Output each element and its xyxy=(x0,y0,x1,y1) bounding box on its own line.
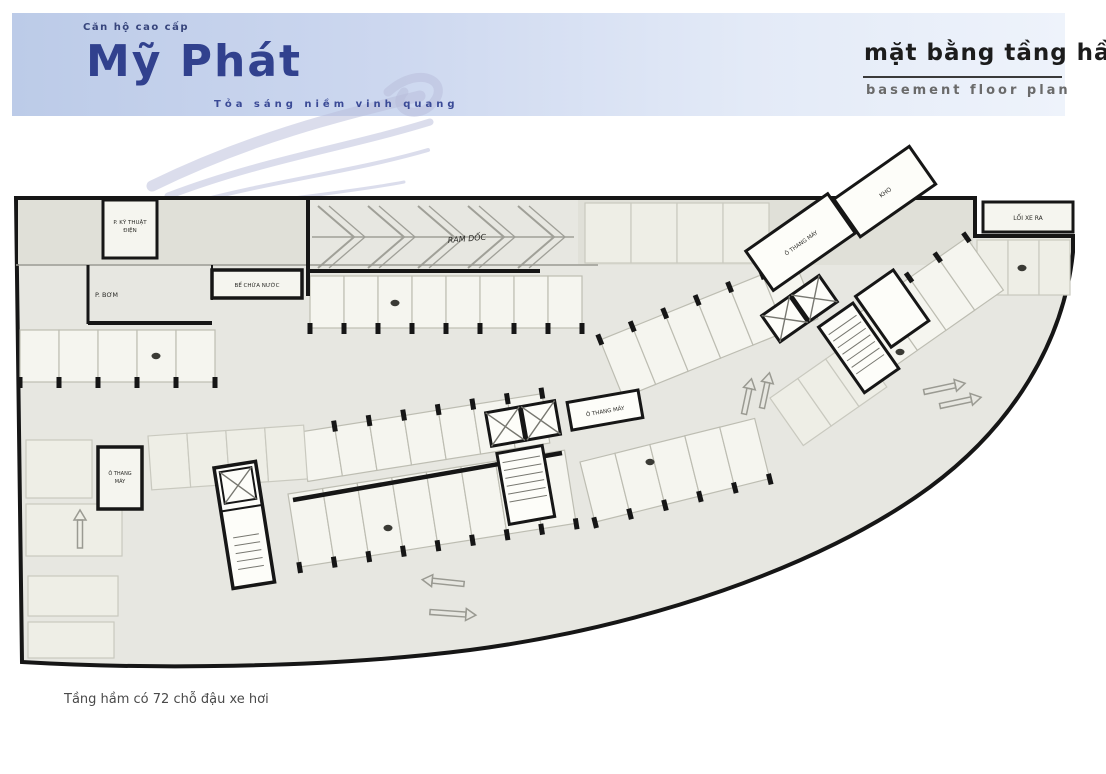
parking-stall xyxy=(28,622,114,658)
caption-parking-count: Tầng hầm có 72 chỗ đậu xe hơi xyxy=(64,692,269,707)
parking-stall xyxy=(26,504,122,556)
parking-stall xyxy=(26,440,92,498)
elevator-box-left: Ô THANG MÁY xyxy=(98,447,142,509)
svg-text:P. KỸ THUẬT: P. KỸ THUẬT xyxy=(113,219,147,226)
svg-text:LỐI XE RA: LỐI XE RA xyxy=(1013,214,1043,222)
parking-stall-group xyxy=(18,330,218,388)
svg-text:ĐIỆN: ĐIỆN xyxy=(123,226,136,234)
car-icon xyxy=(384,525,393,531)
svg-text:Ô THANG: Ô THANG xyxy=(108,470,131,477)
svg-text:BỂ CHỨA NƯỚC: BỂ CHỨA NƯỚC xyxy=(235,281,280,289)
svg-text:MÁY: MÁY xyxy=(115,478,126,485)
electrical-room: P. KỸ THUẬT ĐIỆN xyxy=(103,200,157,258)
parking-stall xyxy=(28,576,118,616)
exit-box: LỐI XE RA xyxy=(983,202,1073,232)
car-icon xyxy=(1018,265,1027,271)
parking-stall-group xyxy=(308,276,585,334)
car-icon xyxy=(152,353,161,359)
car-icon xyxy=(646,459,655,465)
car-icon xyxy=(391,300,400,306)
water-tank: BỂ CHỨA NƯỚC xyxy=(212,270,302,298)
service-band-left xyxy=(18,200,306,264)
basement-floor-plan-drawing: P. KỸ THUẬT ĐIỆN P. BƠM BỂ CHỨA NƯỚC RAM… xyxy=(0,0,1106,774)
pump-room-label: P. BƠM xyxy=(95,291,118,299)
parking-stall-group xyxy=(585,203,769,263)
car-icon xyxy=(896,349,905,355)
